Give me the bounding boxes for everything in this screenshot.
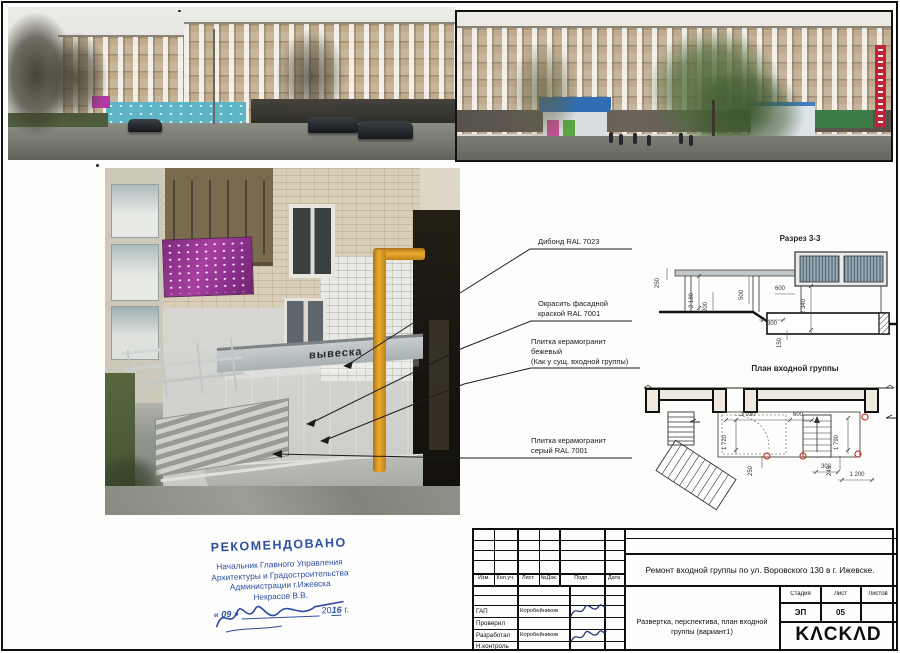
col-ndok: №Док. (539, 575, 559, 581)
col-koluch: Кол.уч. (494, 575, 517, 581)
tree (509, 42, 579, 142)
plan-drawing: План входной группы (640, 362, 898, 520)
wet-pavement (105, 486, 460, 515)
callout-line: Дибонд RAL 7023 (538, 237, 599, 247)
col-list: Лист (517, 575, 539, 581)
dim: 2 180 (689, 293, 695, 308)
balcony (111, 244, 159, 301)
dim: 2 340 (801, 299, 807, 314)
dim: 500 (739, 290, 745, 300)
title-block: Изм. Кол.уч. Лист №Док. Подп. Дата ГАП К… (472, 528, 894, 651)
dim: 3 030 (736, 412, 760, 418)
entrance-photo: вывеска (105, 168, 460, 515)
callout-line: Окрасить фасадной (538, 299, 608, 309)
callout-tile-gray: Плитка керамогранит серый RAL 7001 (531, 436, 606, 456)
stamp-signature (211, 593, 352, 638)
pedestrian (619, 134, 623, 145)
callout-paint: Окрасить фасадной краской RAL 7001 (538, 299, 608, 319)
sheet-label: Лист (821, 591, 860, 597)
project-title: Ремонт входной группы по ул. Воровского … (626, 555, 894, 585)
role-label: ГАП (476, 608, 516, 615)
pedestrian (609, 132, 613, 143)
role-label: Разработал (476, 632, 516, 639)
dim: 1 720 (722, 435, 728, 450)
dim: 250 (655, 278, 661, 288)
dim: 1 790 (834, 435, 840, 450)
role-name: Коробейников (520, 632, 568, 638)
dim: 600 (788, 412, 808, 418)
dim: 250 (748, 466, 754, 476)
dim: 200 (703, 302, 709, 312)
signature (568, 626, 608, 648)
sheets-label: Листов (861, 591, 895, 597)
approval-stamp: РЕКОМЕНДОВАНО Начальник Главного Управле… (149, 533, 412, 623)
right-panorama-photo (455, 10, 893, 162)
car (128, 119, 162, 132)
tree (276, 29, 346, 124)
pedestrian (633, 133, 637, 144)
callout-dibond: Дибонд RAL 7023 (538, 237, 599, 247)
sign-text-dashes (878, 49, 883, 123)
banner-speckles (165, 240, 251, 295)
scan-speck (96, 164, 99, 167)
col-data: Дата (604, 575, 624, 581)
kaskad-logo: KΛCKΛD (781, 621, 896, 649)
dim: 300 (767, 321, 777, 327)
section-drawing: Разрез 3-3 (655, 232, 897, 364)
road (457, 136, 891, 162)
rail-bar (124, 372, 244, 388)
green-shopfront (809, 110, 873, 128)
drawing-sheet: вывеска Дибонд RAL 7023 Окрасить фасадно… (0, 0, 900, 653)
sheet-title: Развертка, перспектива, план входной гру… (626, 587, 778, 649)
callout-line: бежевый (531, 347, 628, 357)
rail-post (160, 346, 167, 398)
col-izm: Изм. (474, 575, 494, 581)
stage-value: ЭП (781, 608, 820, 617)
rail-bar (122, 356, 242, 372)
sheet-value: 05 (821, 608, 860, 617)
plan-linework (640, 362, 898, 520)
dim: 300 (816, 464, 836, 470)
role-name: Коробейников (520, 608, 568, 614)
role-label: Проверил (476, 620, 516, 627)
left-panorama-photo (8, 7, 455, 160)
rail-post (230, 339, 237, 391)
balcony (111, 184, 159, 238)
dim: 600 (775, 286, 785, 292)
dim: 245 (827, 466, 833, 476)
stage-label: Стадия (781, 591, 820, 597)
purple-banner (162, 236, 254, 297)
callout-tile-beige: Плитка керамогранит бежевый (Как у сущ. … (531, 337, 628, 367)
gas-pipe-vertical (373, 250, 386, 472)
stair-railing (120, 334, 246, 406)
pedestrian (689, 135, 693, 146)
role-label: Н.контроль (476, 643, 520, 650)
car (308, 117, 358, 133)
callout-line: краской RAL 7001 (538, 309, 608, 319)
car (358, 121, 413, 139)
callout-line: Плитка керамогранит (531, 436, 606, 446)
col-podp: Подп. (559, 575, 604, 581)
vyveska-sign-label: вывеска (309, 346, 363, 362)
rail-post (196, 342, 203, 394)
scan-speck (178, 10, 181, 12)
callout-line: серый RAL 7001 (531, 446, 606, 456)
signature (568, 600, 608, 622)
arch-pillar (429, 320, 449, 450)
pedestrian (679, 133, 683, 144)
lamp-pole (213, 29, 215, 124)
dim: 150 (777, 338, 783, 348)
tree (44, 32, 108, 124)
dim: 1 200 (844, 472, 870, 478)
vertical-red-sign (875, 45, 886, 127)
window-upper (289, 204, 335, 278)
callout-line: (Как у сущ. входной группы) (531, 357, 628, 367)
pedestrian (647, 135, 651, 146)
callout-line: Плитка керамогранит (531, 337, 628, 347)
